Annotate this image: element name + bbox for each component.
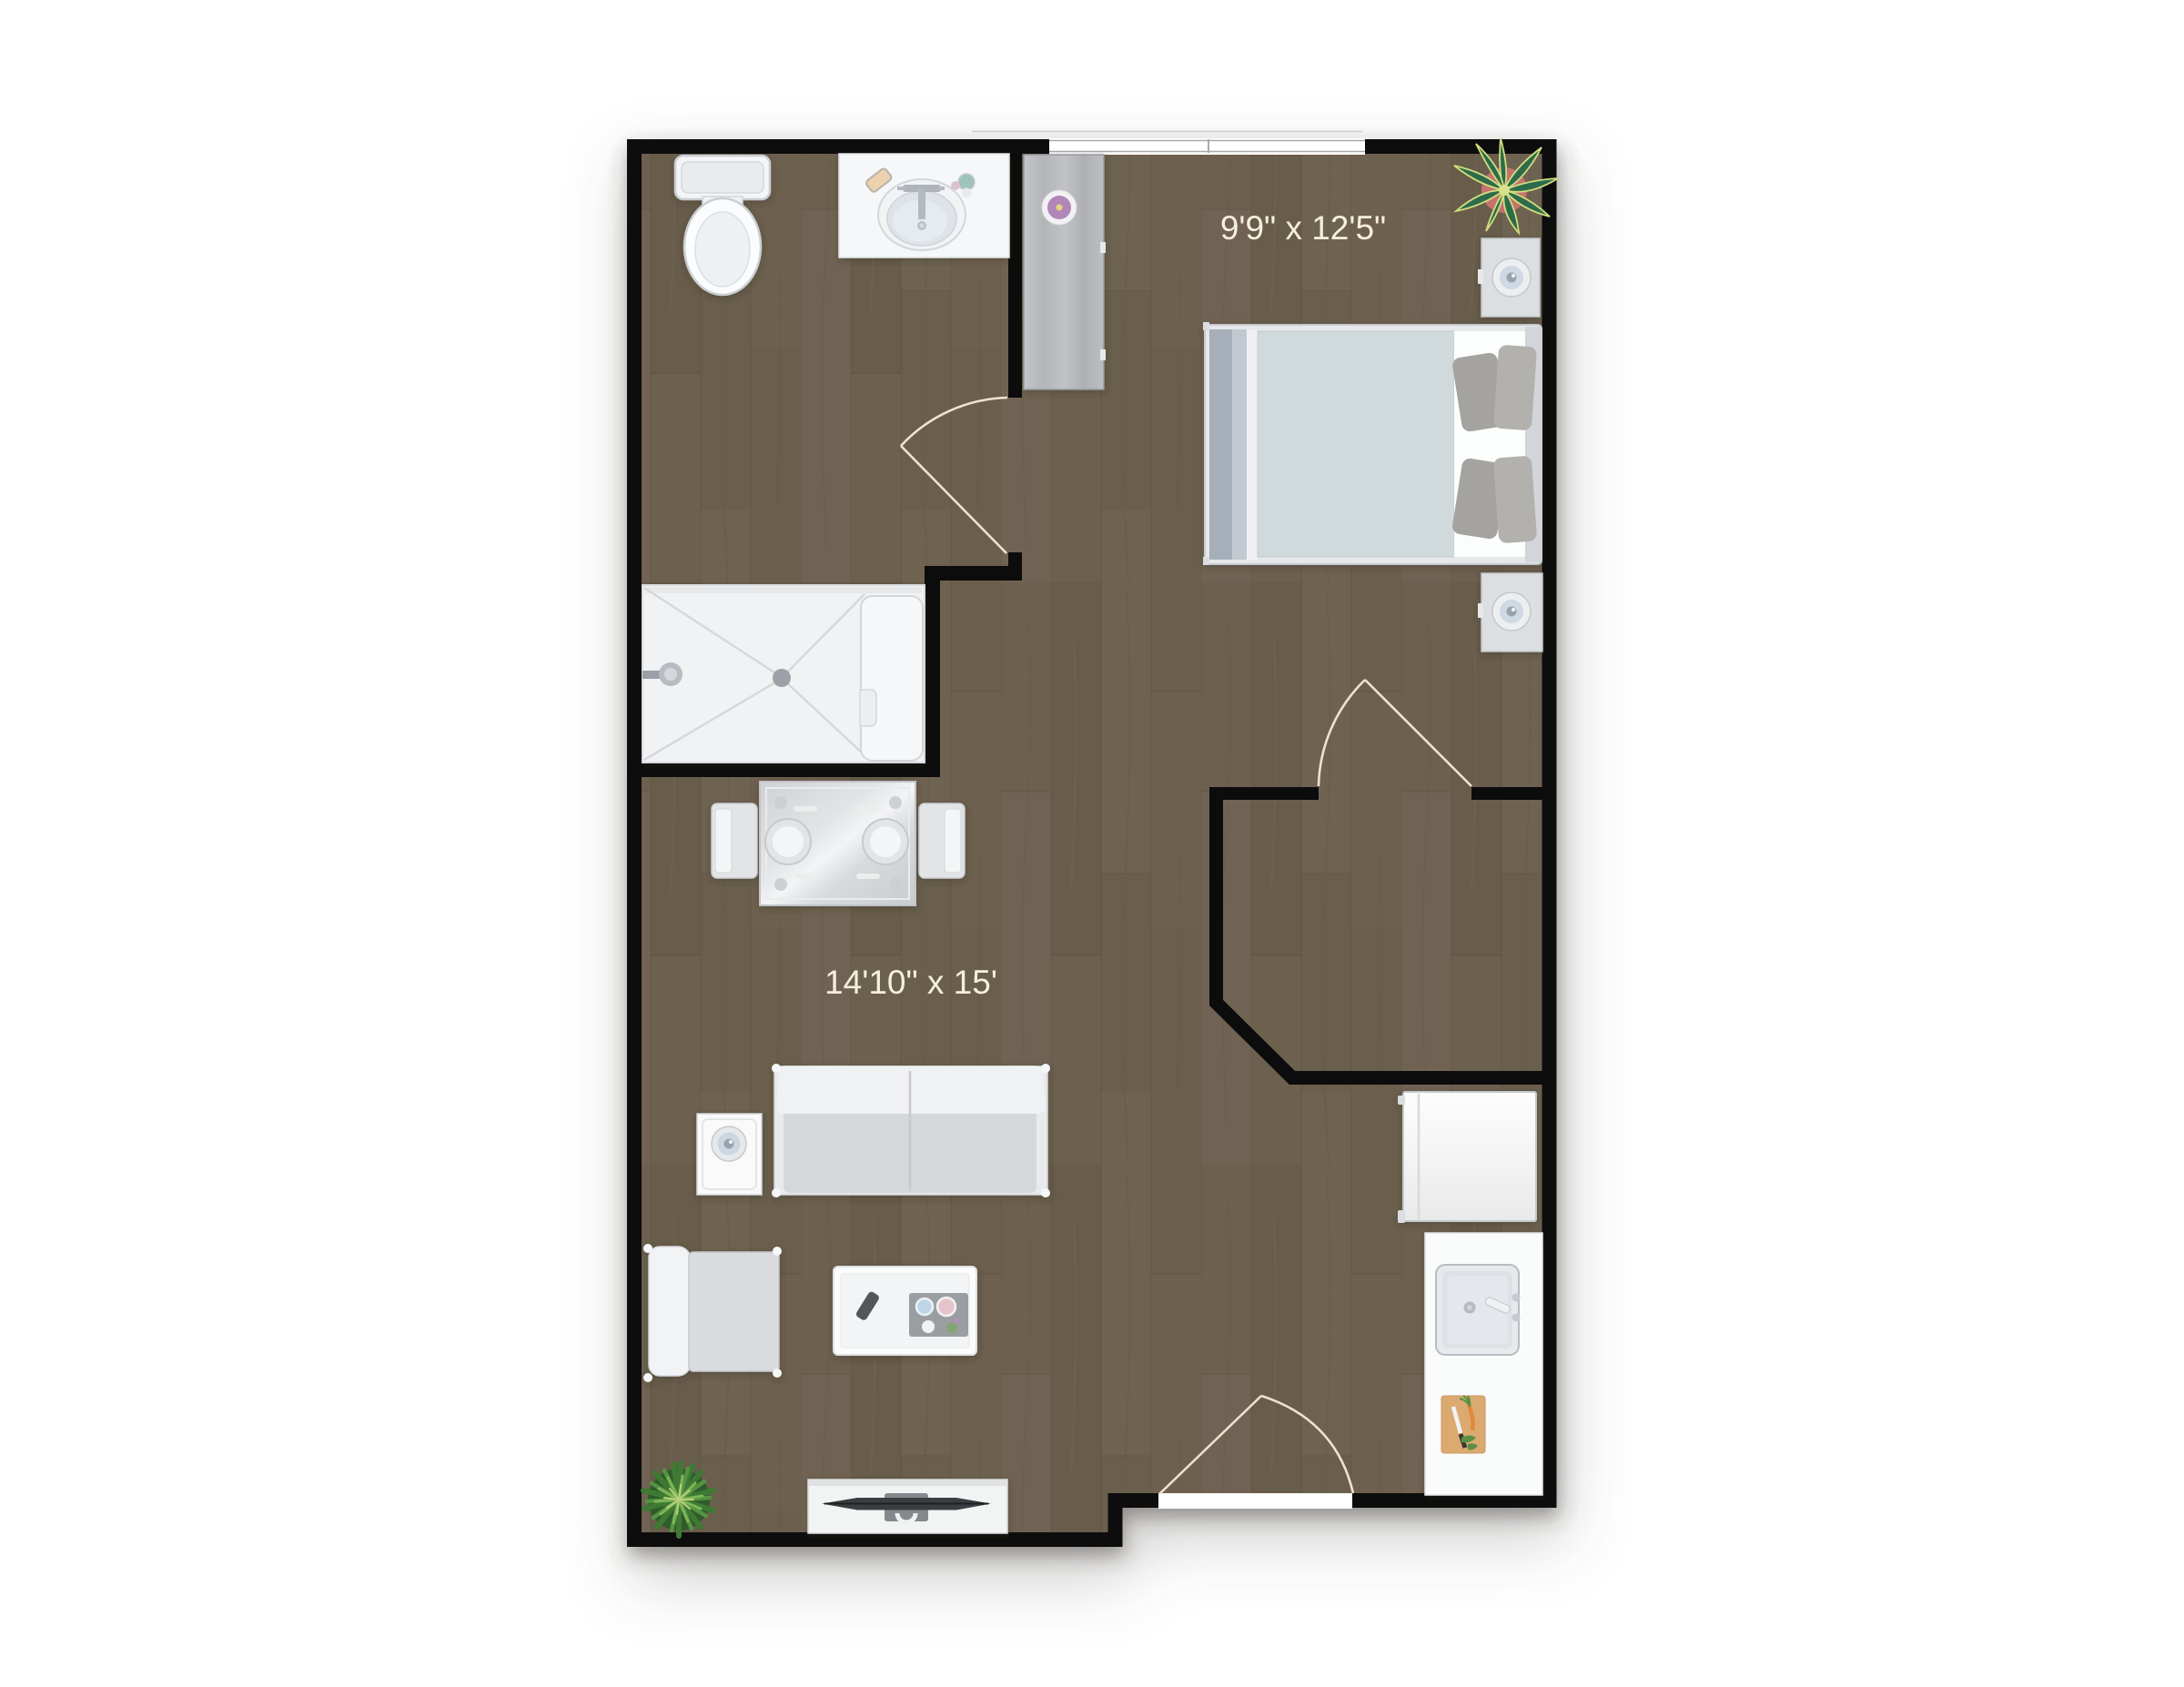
svg-text:14'10" x 15': 14'10" x 15': [824, 964, 997, 1001]
svg-text:9'9" x 12'5": 9'9" x 12'5": [1220, 209, 1386, 247]
